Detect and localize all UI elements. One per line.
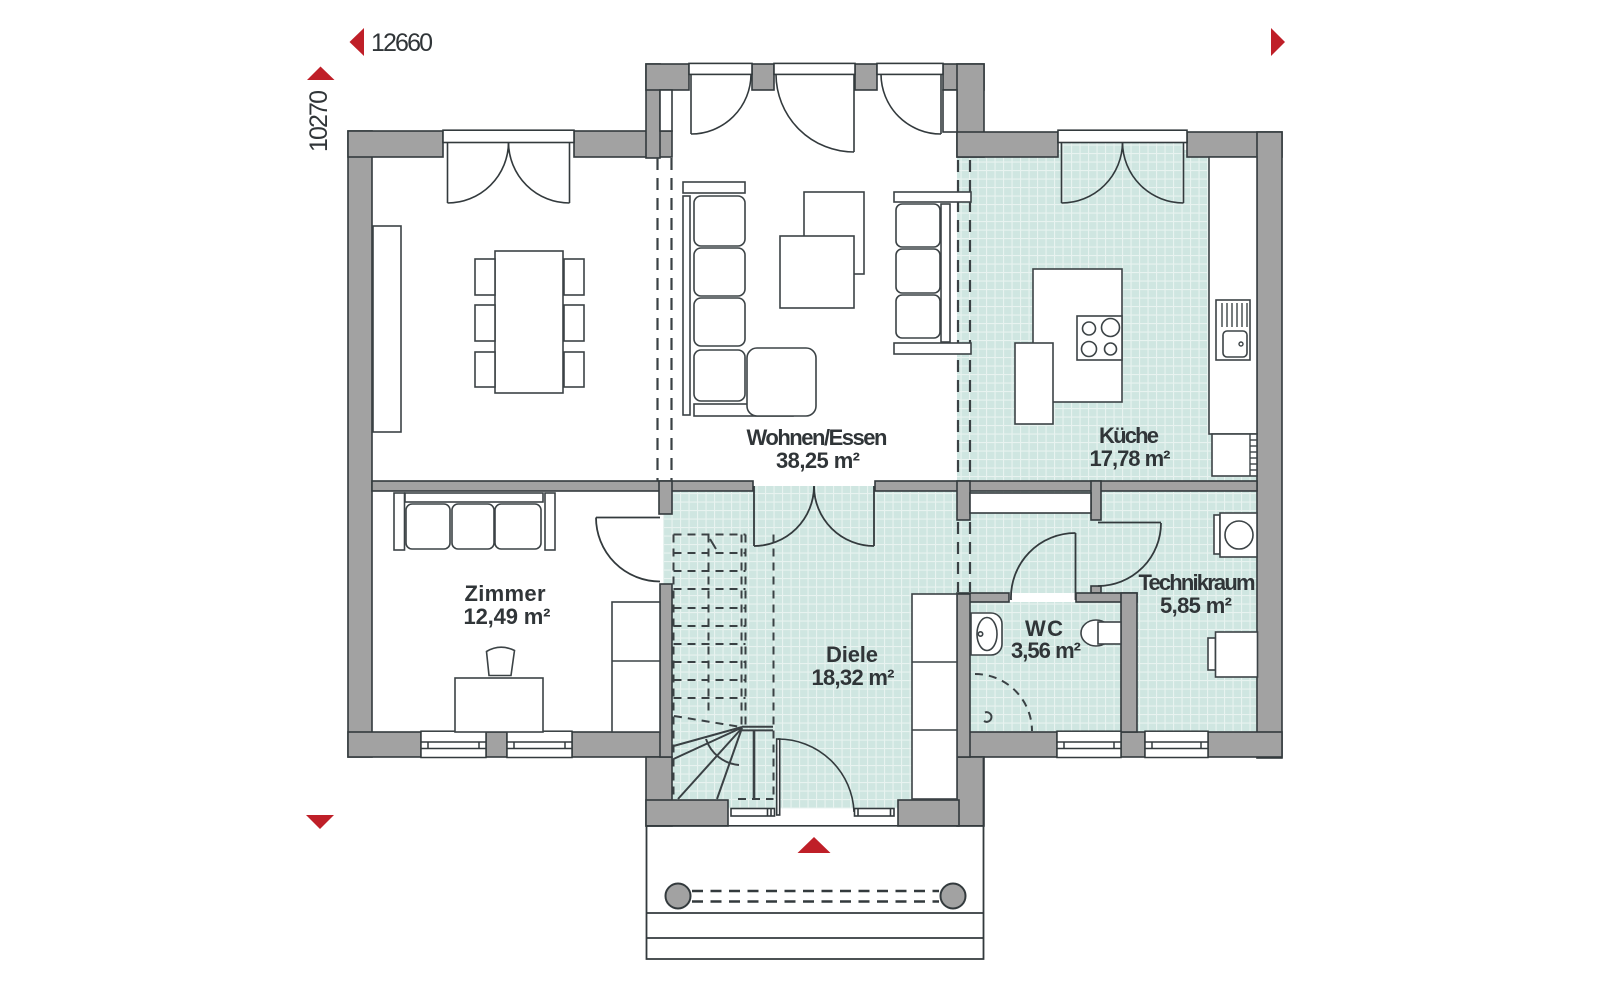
svg-text:Wohnen/Essen: Wohnen/Essen <box>747 425 888 450</box>
svg-text:Zimmer: Zimmer <box>465 581 546 606</box>
svg-text:12660: 12660 <box>371 29 433 57</box>
svg-text:Technikraum: Technikraum <box>1139 570 1256 595</box>
svg-text:Küche: Küche <box>1099 423 1159 448</box>
svg-text:3,56 m²: 3,56 m² <box>1011 638 1081 663</box>
svg-text:5,85 m²: 5,85 m² <box>1160 593 1232 618</box>
svg-text:18,32 m²: 18,32 m² <box>812 665 895 690</box>
svg-text:12,49 m²: 12,49 m² <box>464 604 551 629</box>
svg-text:Diele: Diele <box>826 642 878 667</box>
svg-text:10270: 10270 <box>305 90 333 152</box>
svg-text:17,78 m²: 17,78 m² <box>1090 446 1171 471</box>
svg-text:38,25 m²: 38,25 m² <box>776 448 860 473</box>
